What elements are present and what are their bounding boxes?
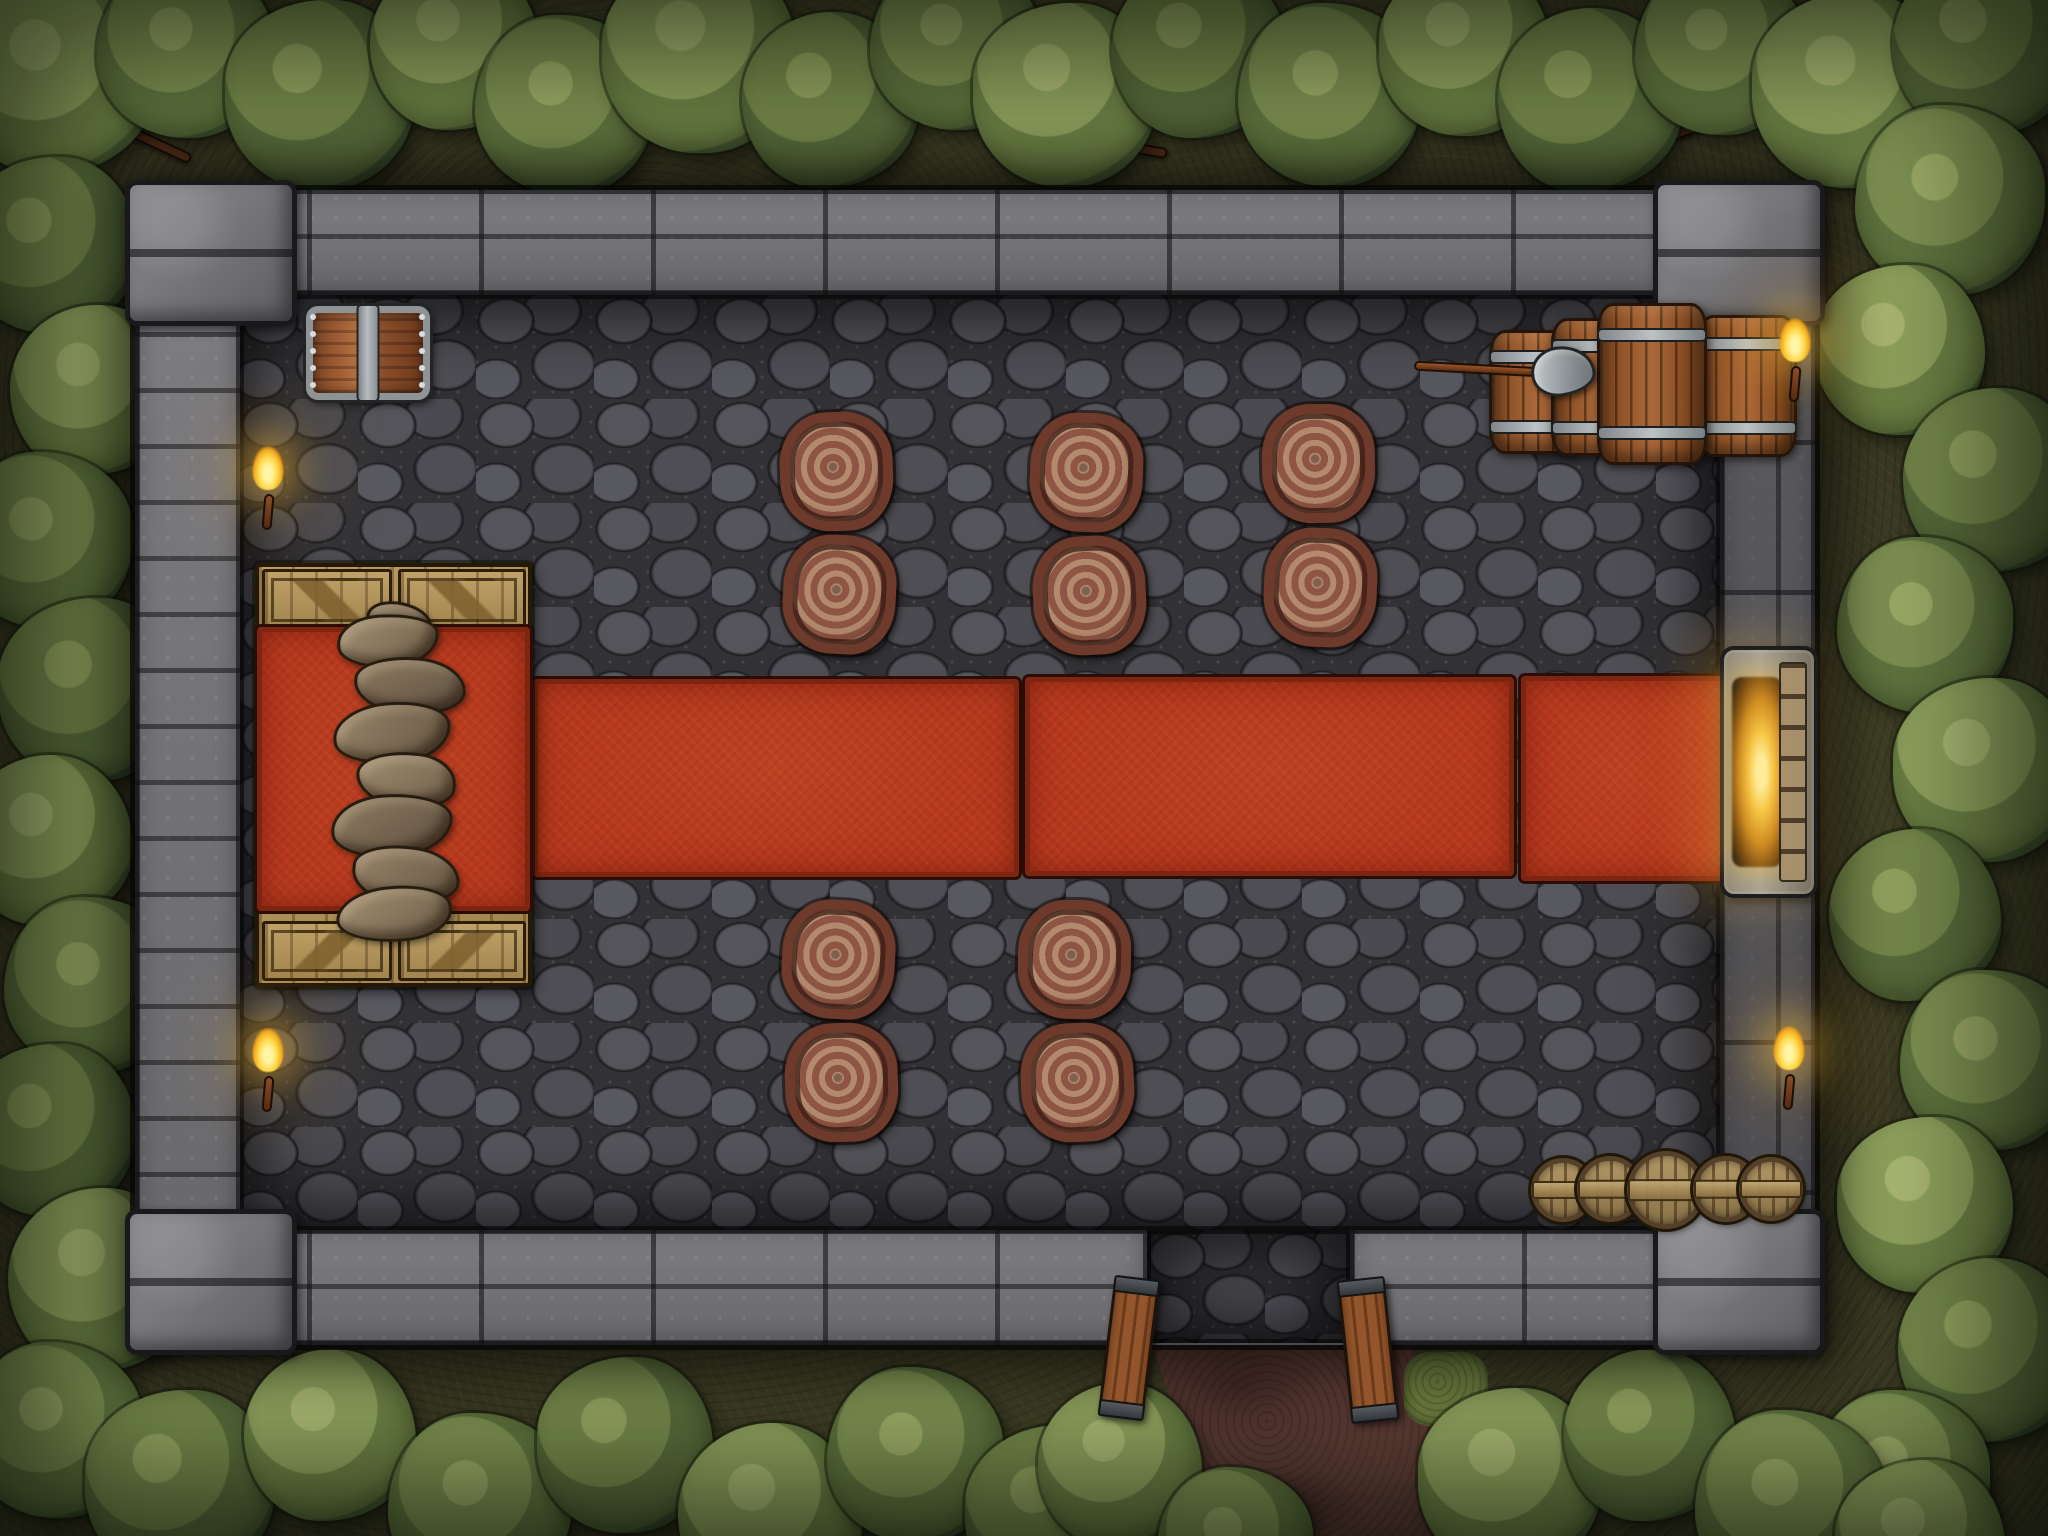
tree-stump-seat bbox=[783, 1021, 900, 1144]
torch-flame-icon bbox=[252, 446, 284, 490]
stone-wall-west bbox=[135, 190, 240, 1345]
tree-stump-seat bbox=[1261, 403, 1376, 524]
tree-stump-seat bbox=[1017, 899, 1132, 1020]
torch-flame-icon bbox=[252, 1028, 284, 1072]
torch-flame-icon bbox=[1773, 1026, 1805, 1070]
tree-stump-seat bbox=[1262, 526, 1379, 649]
battle-map bbox=[0, 0, 2048, 1536]
storage-barrel bbox=[1739, 1157, 1803, 1221]
tree-stump-seat bbox=[1018, 1020, 1137, 1145]
wall-torch bbox=[251, 1028, 285, 1116]
wall-torch bbox=[251, 446, 285, 534]
red-carpet-segment bbox=[1521, 676, 1729, 881]
torch-handle bbox=[261, 1076, 274, 1113]
torch-handle bbox=[1782, 1074, 1795, 1111]
corner-block bbox=[125, 1209, 297, 1355]
stone-wall-north bbox=[135, 190, 1815, 295]
tree-stump-seat bbox=[779, 897, 898, 1022]
tree-stump-seat bbox=[778, 410, 895, 533]
torch-handle bbox=[1788, 366, 1801, 403]
barrel bbox=[1597, 303, 1707, 465]
red-carpet-segment bbox=[533, 679, 1019, 877]
tree-stump-seat bbox=[1028, 411, 1145, 534]
corner-block bbox=[125, 180, 297, 326]
floor-gap-threshold bbox=[1147, 1230, 1350, 1343]
wall-torch bbox=[1778, 318, 1812, 406]
torch-flame-icon bbox=[1779, 318, 1811, 362]
torch-handle bbox=[261, 494, 274, 531]
fireplace-hearth bbox=[1720, 646, 1818, 898]
red-carpet-segment bbox=[1025, 677, 1514, 876]
tree-stump-seat bbox=[780, 532, 899, 657]
tree-stump-seat bbox=[1030, 533, 1149, 658]
corner-block bbox=[1653, 1209, 1825, 1355]
treasure-chest bbox=[306, 306, 430, 400]
wall-torch bbox=[1772, 1026, 1806, 1114]
